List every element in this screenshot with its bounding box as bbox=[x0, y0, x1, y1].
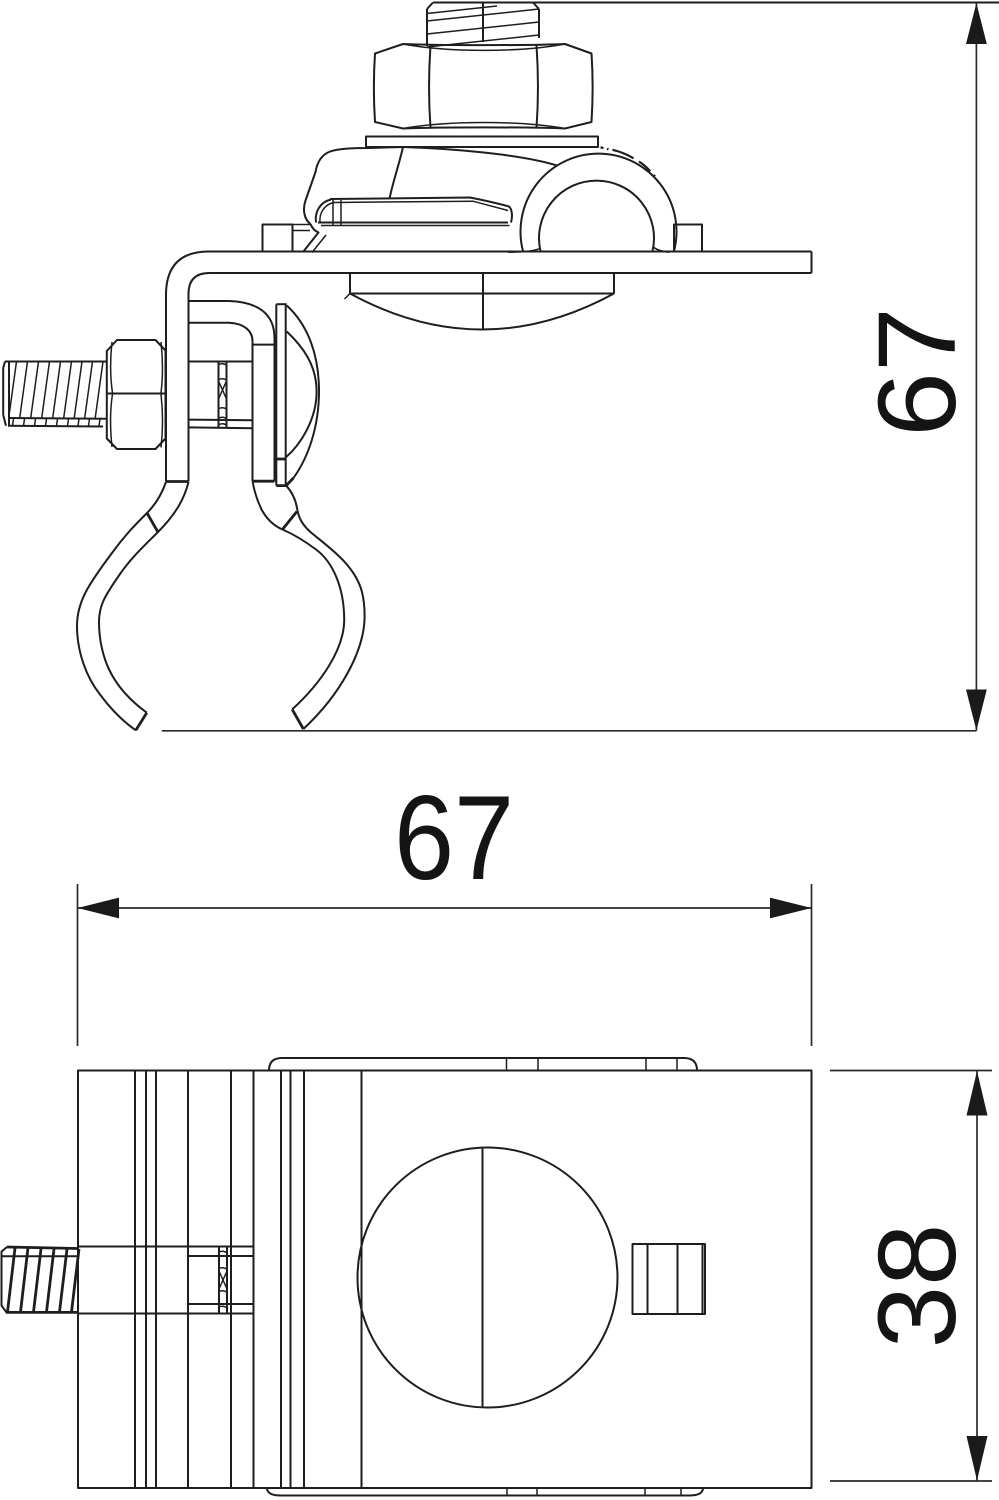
svg-text:67: 67 bbox=[856, 307, 979, 437]
svg-text:67: 67 bbox=[394, 772, 514, 905]
svg-text:38: 38 bbox=[855, 1224, 979, 1349]
